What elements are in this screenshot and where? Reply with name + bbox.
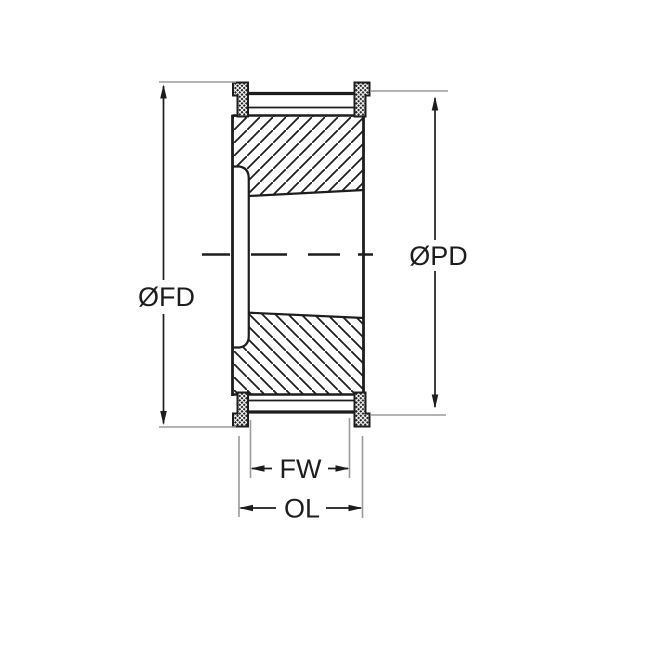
lower-section-hatch [233,313,364,395]
fd-arrowhead-down [160,411,167,425]
dimension-face-width: FW [251,418,350,484]
fw-arrowhead-right [336,465,350,472]
fw-arrowhead-left [251,465,265,472]
ol-arrowhead-left [239,505,253,512]
drawing-canvas: ØFD ØPD FW OL [0,0,670,670]
bushing-slot-outline [233,167,249,348]
flange-bottom-left [233,393,248,427]
ol-arrowhead-right [349,505,363,512]
flange-top-left [233,83,248,117]
fw-label: FW [280,454,322,484]
flange-bottom-right [355,393,370,427]
bottom-rim [233,395,364,413]
top-rim [233,94,364,116]
pulley-technical-drawing: ØFD ØPD FW OL [0,0,670,670]
pd-arrowhead-up [432,97,439,111]
pd-arrowhead-down [432,395,439,409]
flange-top-right [355,83,370,117]
fd-arrowhead-up [160,85,167,99]
pd-label: ØPD [409,241,468,271]
dimension-pitch-diameter: ØPD [370,91,468,415]
ol-label: OL [284,494,320,524]
pulley-body [202,83,373,427]
upper-section-hatch [233,116,364,196]
fd-label: ØFD [138,282,195,312]
